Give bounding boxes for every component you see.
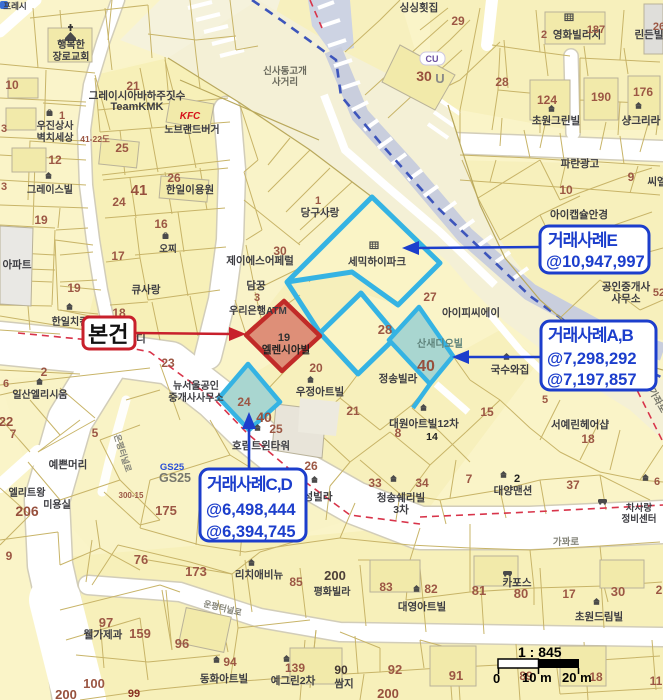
svg-text:리치애비뉴: 리치애비뉴: [235, 568, 284, 581]
svg-text:TeamKMK: TeamKMK: [111, 101, 164, 113]
svg-text:3: 3: [1, 123, 7, 135]
svg-text:당구사랑: 당구사랑: [301, 206, 340, 219]
svg-text:2: 2: [41, 365, 48, 379]
svg-text:12: 12: [48, 153, 62, 167]
svg-text:173: 173: [185, 564, 207, 579]
svg-text:사거리: 사거리: [272, 76, 298, 88]
svg-text:우진상사: 우진상사: [37, 119, 75, 132]
svg-text:8: 8: [395, 426, 402, 440]
svg-text:97: 97: [99, 615, 113, 630]
svg-text:5: 5: [542, 394, 548, 406]
svg-text:호림트윈타워: 호림트윈타워: [232, 439, 290, 452]
svg-text:41-22도: 41-22도: [80, 134, 110, 144]
svg-text:11: 11: [650, 674, 663, 688]
svg-text:씨엘: 씨엘: [647, 175, 663, 188]
svg-text:6: 6: [654, 476, 660, 488]
svg-text:20: 20: [309, 361, 323, 375]
svg-text:GS25: GS25: [159, 471, 191, 485]
svg-text:거래사례C,D: 거래사례C,D: [207, 475, 293, 494]
svg-text:206: 206: [15, 503, 39, 519]
svg-text:사무소: 사무소: [612, 292, 641, 305]
svg-text:@7,298,292: @7,298,292: [547, 350, 637, 368]
svg-text:노브랜드버거: 노브랜드버거: [164, 123, 219, 136]
svg-text:담꿍: 담꿍: [246, 279, 266, 292]
svg-text:@10,947,997: @10,947,997: [546, 253, 645, 271]
svg-text:18: 18: [581, 432, 595, 446]
svg-text:초원그린빌: 초원그린빌: [532, 114, 580, 127]
svg-text:예그린2차: 예그린2차: [271, 674, 316, 687]
svg-text:28: 28: [495, 75, 509, 89]
svg-text:96: 96: [175, 636, 189, 651]
svg-text:25: 25: [269, 422, 283, 436]
svg-text:26: 26: [653, 21, 663, 33]
svg-text:아이피씨에이: 아이피씨에이: [442, 306, 500, 319]
svg-text:159: 159: [129, 626, 151, 641]
svg-text:80: 80: [514, 586, 528, 601]
svg-text:그레이스빌: 그레이스빌: [27, 183, 73, 196]
svg-text:0: 0: [493, 671, 500, 686]
svg-text:3: 3: [254, 292, 260, 304]
svg-text:싱싱횟집: 싱싱횟집: [400, 1, 439, 14]
svg-text:200: 200: [324, 568, 346, 583]
svg-text:19: 19: [67, 281, 81, 295]
svg-text:산새디오빌: 산새디오빌: [417, 337, 463, 350]
svg-text:83: 83: [379, 580, 393, 594]
svg-text:17: 17: [562, 587, 576, 601]
svg-text:34: 34: [415, 476, 429, 490]
svg-text:200: 200: [55, 687, 77, 700]
svg-text:21: 21: [346, 404, 360, 418]
svg-text:샹그리라: 샹그리라: [622, 114, 661, 127]
svg-text:10: 10: [559, 183, 573, 197]
svg-text:30: 30: [416, 68, 432, 84]
svg-text:82: 82: [424, 582, 438, 596]
svg-text:오찌: 오찌: [159, 243, 176, 255]
svg-text:22: 22: [0, 414, 13, 429]
svg-text:33: 33: [368, 476, 382, 490]
svg-text:초원드림빌: 초원드림빌: [575, 610, 623, 623]
svg-text:웰가제과: 웰가제과: [84, 628, 123, 641]
svg-text:신사동고개: 신사동고개: [263, 65, 307, 77]
svg-text:@6,394,745: @6,394,745: [206, 523, 296, 541]
svg-text:30: 30: [273, 244, 287, 258]
svg-text:81: 81: [472, 583, 486, 598]
svg-text:정송빌라: 정송빌라: [379, 372, 418, 385]
svg-text:187: 187: [587, 24, 605, 36]
svg-text:KFC: KFC: [180, 111, 201, 122]
svg-text:대영아트빌: 대영아트빌: [398, 600, 446, 613]
svg-text:대양맨션: 대양맨션: [494, 484, 533, 497]
svg-text:5: 5: [92, 426, 99, 440]
svg-text:미용실: 미용실: [43, 498, 71, 511]
svg-text:일산엘리시움: 일산엘리시움: [12, 388, 67, 401]
svg-text:예쁜머리: 예쁜머리: [49, 458, 88, 471]
svg-text:99: 99: [128, 688, 140, 700]
svg-text:15: 15: [480, 405, 494, 419]
svg-text:본건: 본건: [88, 322, 128, 347]
svg-text:76: 76: [134, 552, 148, 567]
svg-text:가꽈로: 가꽈로: [553, 536, 579, 548]
svg-text:국수와집: 국수와집: [491, 364, 530, 376]
svg-text:23: 23: [161, 356, 175, 370]
svg-text:94: 94: [223, 655, 237, 669]
svg-text:29: 29: [451, 14, 465, 28]
svg-text:성빌라: 성빌라: [304, 490, 333, 503]
svg-text:동화아트빌: 동화아트빌: [200, 672, 248, 685]
svg-text:차사랑: 차사랑: [626, 502, 652, 514]
svg-text:우리은행ATM: 우리은행ATM: [229, 304, 287, 317]
svg-text:24: 24: [112, 195, 126, 209]
svg-text:27: 27: [423, 290, 437, 304]
svg-text:CU: CU: [426, 54, 439, 64]
svg-text:우정아트빌: 우정아트빌: [296, 385, 344, 398]
svg-text:6: 6: [3, 378, 9, 390]
svg-text:176: 176: [633, 85, 653, 99]
svg-text:프레시: 프레시: [3, 1, 26, 11]
svg-text:거래사례E: 거래사례E: [548, 231, 618, 250]
svg-text:28: 28: [378, 322, 392, 337]
svg-text:3차: 3차: [393, 503, 409, 516]
svg-text:9: 9: [6, 549, 13, 563]
svg-text:U: U: [435, 71, 444, 86]
svg-text:1: 1: [315, 195, 321, 207]
svg-text:세믹하이파크: 세믹하이파크: [348, 255, 406, 268]
svg-text:아이캡슐안경: 아이캡슐안경: [550, 208, 608, 221]
svg-text:뉴서울공인: 뉴서울공인: [173, 379, 219, 392]
svg-text:10: 10: [5, 78, 19, 92]
svg-text:9: 9: [628, 170, 635, 184]
svg-text:공인중개사: 공인중개사: [602, 280, 651, 293]
svg-text:서예린헤어샵: 서예린헤어샵: [551, 418, 609, 431]
svg-text:91: 91: [449, 668, 463, 683]
svg-text:파란광고: 파란광고: [561, 157, 600, 170]
svg-text:20 m: 20 m: [562, 670, 592, 685]
svg-text:139: 139: [285, 661, 305, 675]
svg-text:평화빌라: 평화빌라: [314, 585, 352, 598]
svg-text:52: 52: [653, 287, 663, 299]
svg-text:175: 175: [155, 503, 177, 518]
svg-text:124: 124: [537, 93, 557, 107]
svg-text:21: 21: [126, 79, 140, 93]
svg-text:17: 17: [111, 249, 125, 263]
svg-text:10 m: 10 m: [522, 670, 552, 685]
svg-text:행복한: 행복한: [57, 38, 85, 51]
svg-text:30: 30: [611, 584, 625, 599]
svg-text:19: 19: [278, 332, 290, 344]
svg-text:24: 24: [237, 395, 251, 409]
svg-text:벽치세상: 벽치세상: [37, 131, 75, 144]
svg-text:@6,498,444: @6,498,444: [206, 501, 296, 519]
svg-text:25: 25: [115, 141, 129, 155]
svg-text:2: 2: [541, 29, 547, 41]
svg-text:26: 26: [167, 171, 181, 185]
svg-text:14: 14: [426, 431, 438, 443]
svg-text:300-15: 300-15: [119, 491, 144, 500]
svg-text:아파트: 아파트: [3, 258, 32, 271]
svg-text:장로교회: 장로교회: [53, 50, 90, 63]
svg-text:41: 41: [131, 182, 148, 199]
svg-text:2: 2: [514, 473, 520, 485]
svg-text:190: 190: [591, 90, 611, 104]
svg-text:200: 200: [377, 686, 399, 700]
svg-text:92: 92: [388, 662, 402, 677]
svg-text:40: 40: [417, 358, 435, 375]
svg-text:3: 3: [1, 181, 7, 193]
svg-text:엘렌시아빌: 엘렌시아빌: [262, 343, 310, 356]
svg-text:90: 90: [334, 663, 348, 677]
svg-text:7: 7: [10, 427, 17, 441]
svg-text:한일이용원: 한일이용원: [166, 183, 214, 196]
svg-text:7: 7: [466, 472, 473, 486]
svg-text:100: 100: [83, 676, 105, 691]
svg-text:2: 2: [656, 583, 663, 597]
svg-text:85: 85: [289, 575, 303, 589]
svg-text:중개사사무소: 중개사사무소: [168, 391, 223, 404]
svg-text:37: 37: [566, 478, 580, 492]
svg-text:1 : 845: 1 : 845: [518, 644, 562, 660]
svg-text:거래사례A,B: 거래사례A,B: [548, 326, 634, 345]
svg-text:청송쉐리빌: 청송쉐리빌: [377, 491, 425, 504]
svg-text:엘리트왕: 엘리트왕: [9, 486, 47, 499]
svg-text:16: 16: [154, 217, 168, 231]
svg-text:큐사랑: 큐사랑: [132, 283, 161, 296]
svg-text:26: 26: [304, 459, 318, 473]
svg-text:쌈지: 쌈지: [334, 677, 353, 690]
svg-text:19: 19: [34, 213, 48, 227]
svg-text:정비센터: 정비센터: [622, 513, 657, 525]
svg-text:@7,197,857: @7,197,857: [547, 371, 637, 389]
